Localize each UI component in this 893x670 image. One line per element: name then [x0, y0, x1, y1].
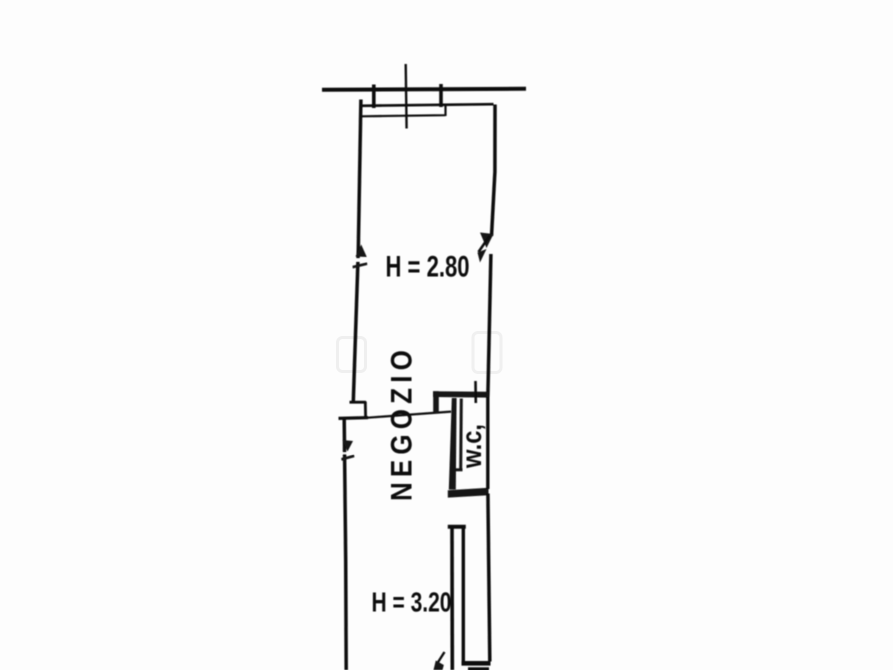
svg-text:w.c,: w.c,: [456, 424, 487, 469]
svg-text:H = 3.20: H = 3.20: [372, 587, 452, 618]
svg-text:NEGOZIO: NEGOZIO: [386, 345, 419, 501]
svg-text:H = 2.80: H = 2.80: [386, 251, 470, 284]
